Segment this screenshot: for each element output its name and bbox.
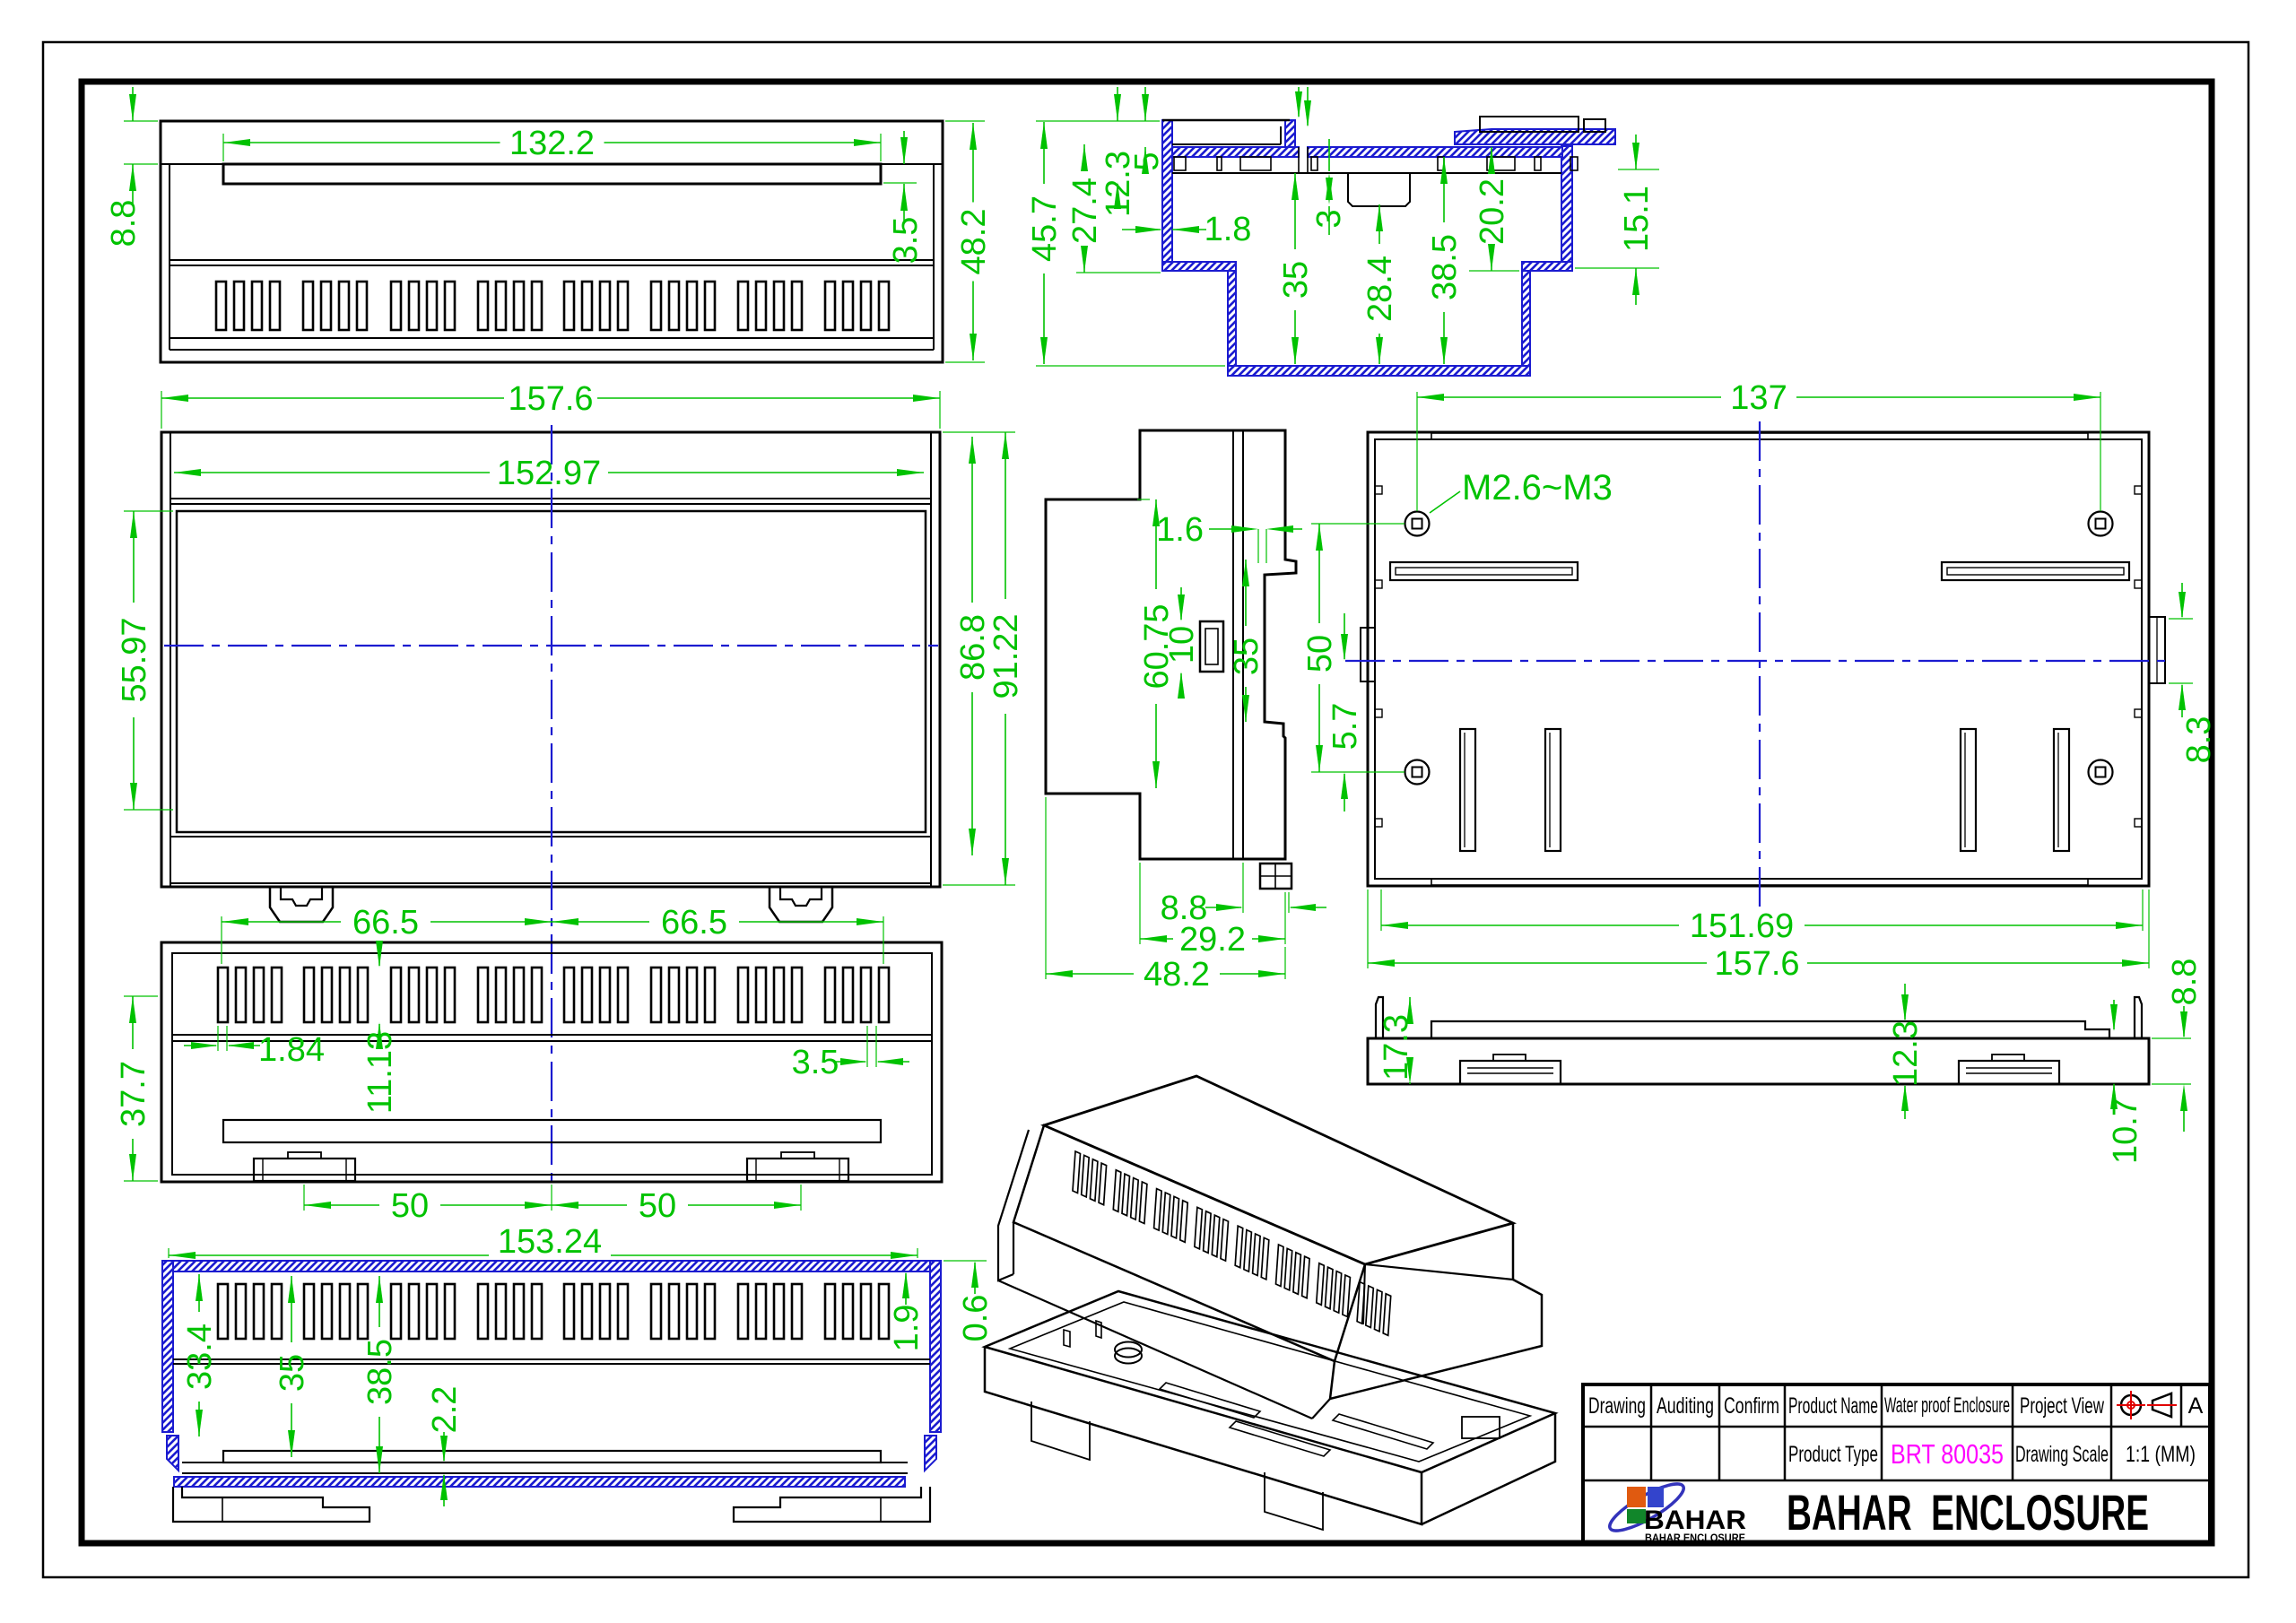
svg-text:12.3: 12.3 — [1887, 1020, 1925, 1087]
svg-text:Drawing Scale: Drawing Scale — [2015, 1442, 2109, 1467]
svg-text:20.2: 20.2 — [1474, 178, 1511, 245]
svg-text:86.8: 86.8 — [954, 614, 992, 681]
svg-text:Water proof Enclosure: Water proof Enclosure — [1884, 1393, 2010, 1418]
svg-text:35: 35 — [274, 1354, 311, 1392]
svg-text:1.8: 1.8 — [1205, 211, 1252, 248]
svg-text:15.1: 15.1 — [1618, 186, 1656, 252]
svg-text:48.2: 48.2 — [1144, 956, 1210, 994]
svg-text:137: 137 — [1730, 379, 1787, 417]
svg-text:BAHAR ENCLOSURE: BAHAR ENCLOSURE — [1787, 1484, 2149, 1541]
svg-text:157.6: 157.6 — [508, 380, 593, 418]
svg-text:38.5: 38.5 — [361, 1339, 399, 1405]
svg-text:5.7: 5.7 — [1326, 703, 1364, 751]
svg-text:45.7: 45.7 — [1026, 195, 1064, 262]
svg-text:Drawing: Drawing — [1588, 1393, 1646, 1419]
svg-text:151.69: 151.69 — [1690, 907, 1794, 945]
svg-text:BAHAR ENCLOSURE: BAHAR ENCLOSURE — [1645, 1532, 1745, 1544]
svg-text:1.84: 1.84 — [258, 1031, 325, 1069]
svg-text:Auditing: Auditing — [1657, 1393, 1714, 1419]
svg-text:50: 50 — [639, 1187, 676, 1225]
svg-text:37.7: 37.7 — [115, 1061, 152, 1127]
svg-text:Product Type: Product Type — [1788, 1442, 1878, 1467]
svg-text:1:1 (MM): 1:1 (MM) — [2126, 1442, 2196, 1467]
svg-text:152.97: 152.97 — [497, 455, 601, 492]
svg-text:55.97: 55.97 — [116, 617, 153, 702]
svg-text:M2.6~M3: M2.6~M3 — [1462, 468, 1613, 508]
svg-text:0.6: 0.6 — [957, 1295, 995, 1342]
svg-text:Product Name: Product Name — [1788, 1393, 1878, 1419]
svg-text:66.5: 66.5 — [352, 904, 419, 942]
svg-text:132.2: 132.2 — [509, 125, 595, 162]
svg-text:27.4: 27.4 — [1066, 178, 1104, 244]
svg-text:17.3: 17.3 — [1378, 1014, 1415, 1081]
svg-text:10: 10 — [1163, 626, 1201, 664]
svg-text:8.8: 8.8 — [2166, 959, 2204, 1006]
svg-text:28.4: 28.4 — [1361, 256, 1399, 322]
svg-text:29.2: 29.2 — [1179, 921, 1246, 959]
svg-text:153.24: 153.24 — [498, 1223, 602, 1261]
svg-text:Project View: Project View — [2020, 1393, 2105, 1419]
svg-text:5: 5 — [1128, 152, 1166, 170]
svg-text:48.2: 48.2 — [955, 209, 993, 275]
svg-text:35: 35 — [1277, 261, 1315, 299]
svg-text:91.22: 91.22 — [987, 613, 1025, 699]
svg-text:50: 50 — [391, 1187, 429, 1225]
svg-text:1.6: 1.6 — [1156, 511, 1204, 549]
svg-text:11.13: 11.13 — [361, 1031, 399, 1114]
svg-text:2.2: 2.2 — [426, 1386, 464, 1434]
svg-text:38.5: 38.5 — [1426, 234, 1464, 300]
svg-text:A: A — [2188, 1393, 2204, 1419]
svg-text:8.8: 8.8 — [105, 200, 143, 247]
svg-text:Confirm: Confirm — [1724, 1393, 1779, 1419]
svg-text:10.7: 10.7 — [2107, 1098, 2144, 1164]
svg-text:66.5: 66.5 — [661, 904, 727, 942]
svg-text:35: 35 — [1228, 638, 1265, 675]
svg-text:1.9: 1.9 — [888, 1305, 926, 1352]
svg-text:50: 50 — [1301, 635, 1339, 673]
svg-text:157.6: 157.6 — [1714, 945, 1799, 983]
svg-text:33.4: 33.4 — [181, 1324, 219, 1390]
svg-text:3.5: 3.5 — [792, 1044, 839, 1081]
svg-text:3.5: 3.5 — [887, 217, 925, 265]
svg-text:3: 3 — [1310, 209, 1348, 228]
svg-text:8.3: 8.3 — [2180, 716, 2218, 764]
svg-text:BRT 80035: BRT 80035 — [1891, 1438, 2004, 1470]
